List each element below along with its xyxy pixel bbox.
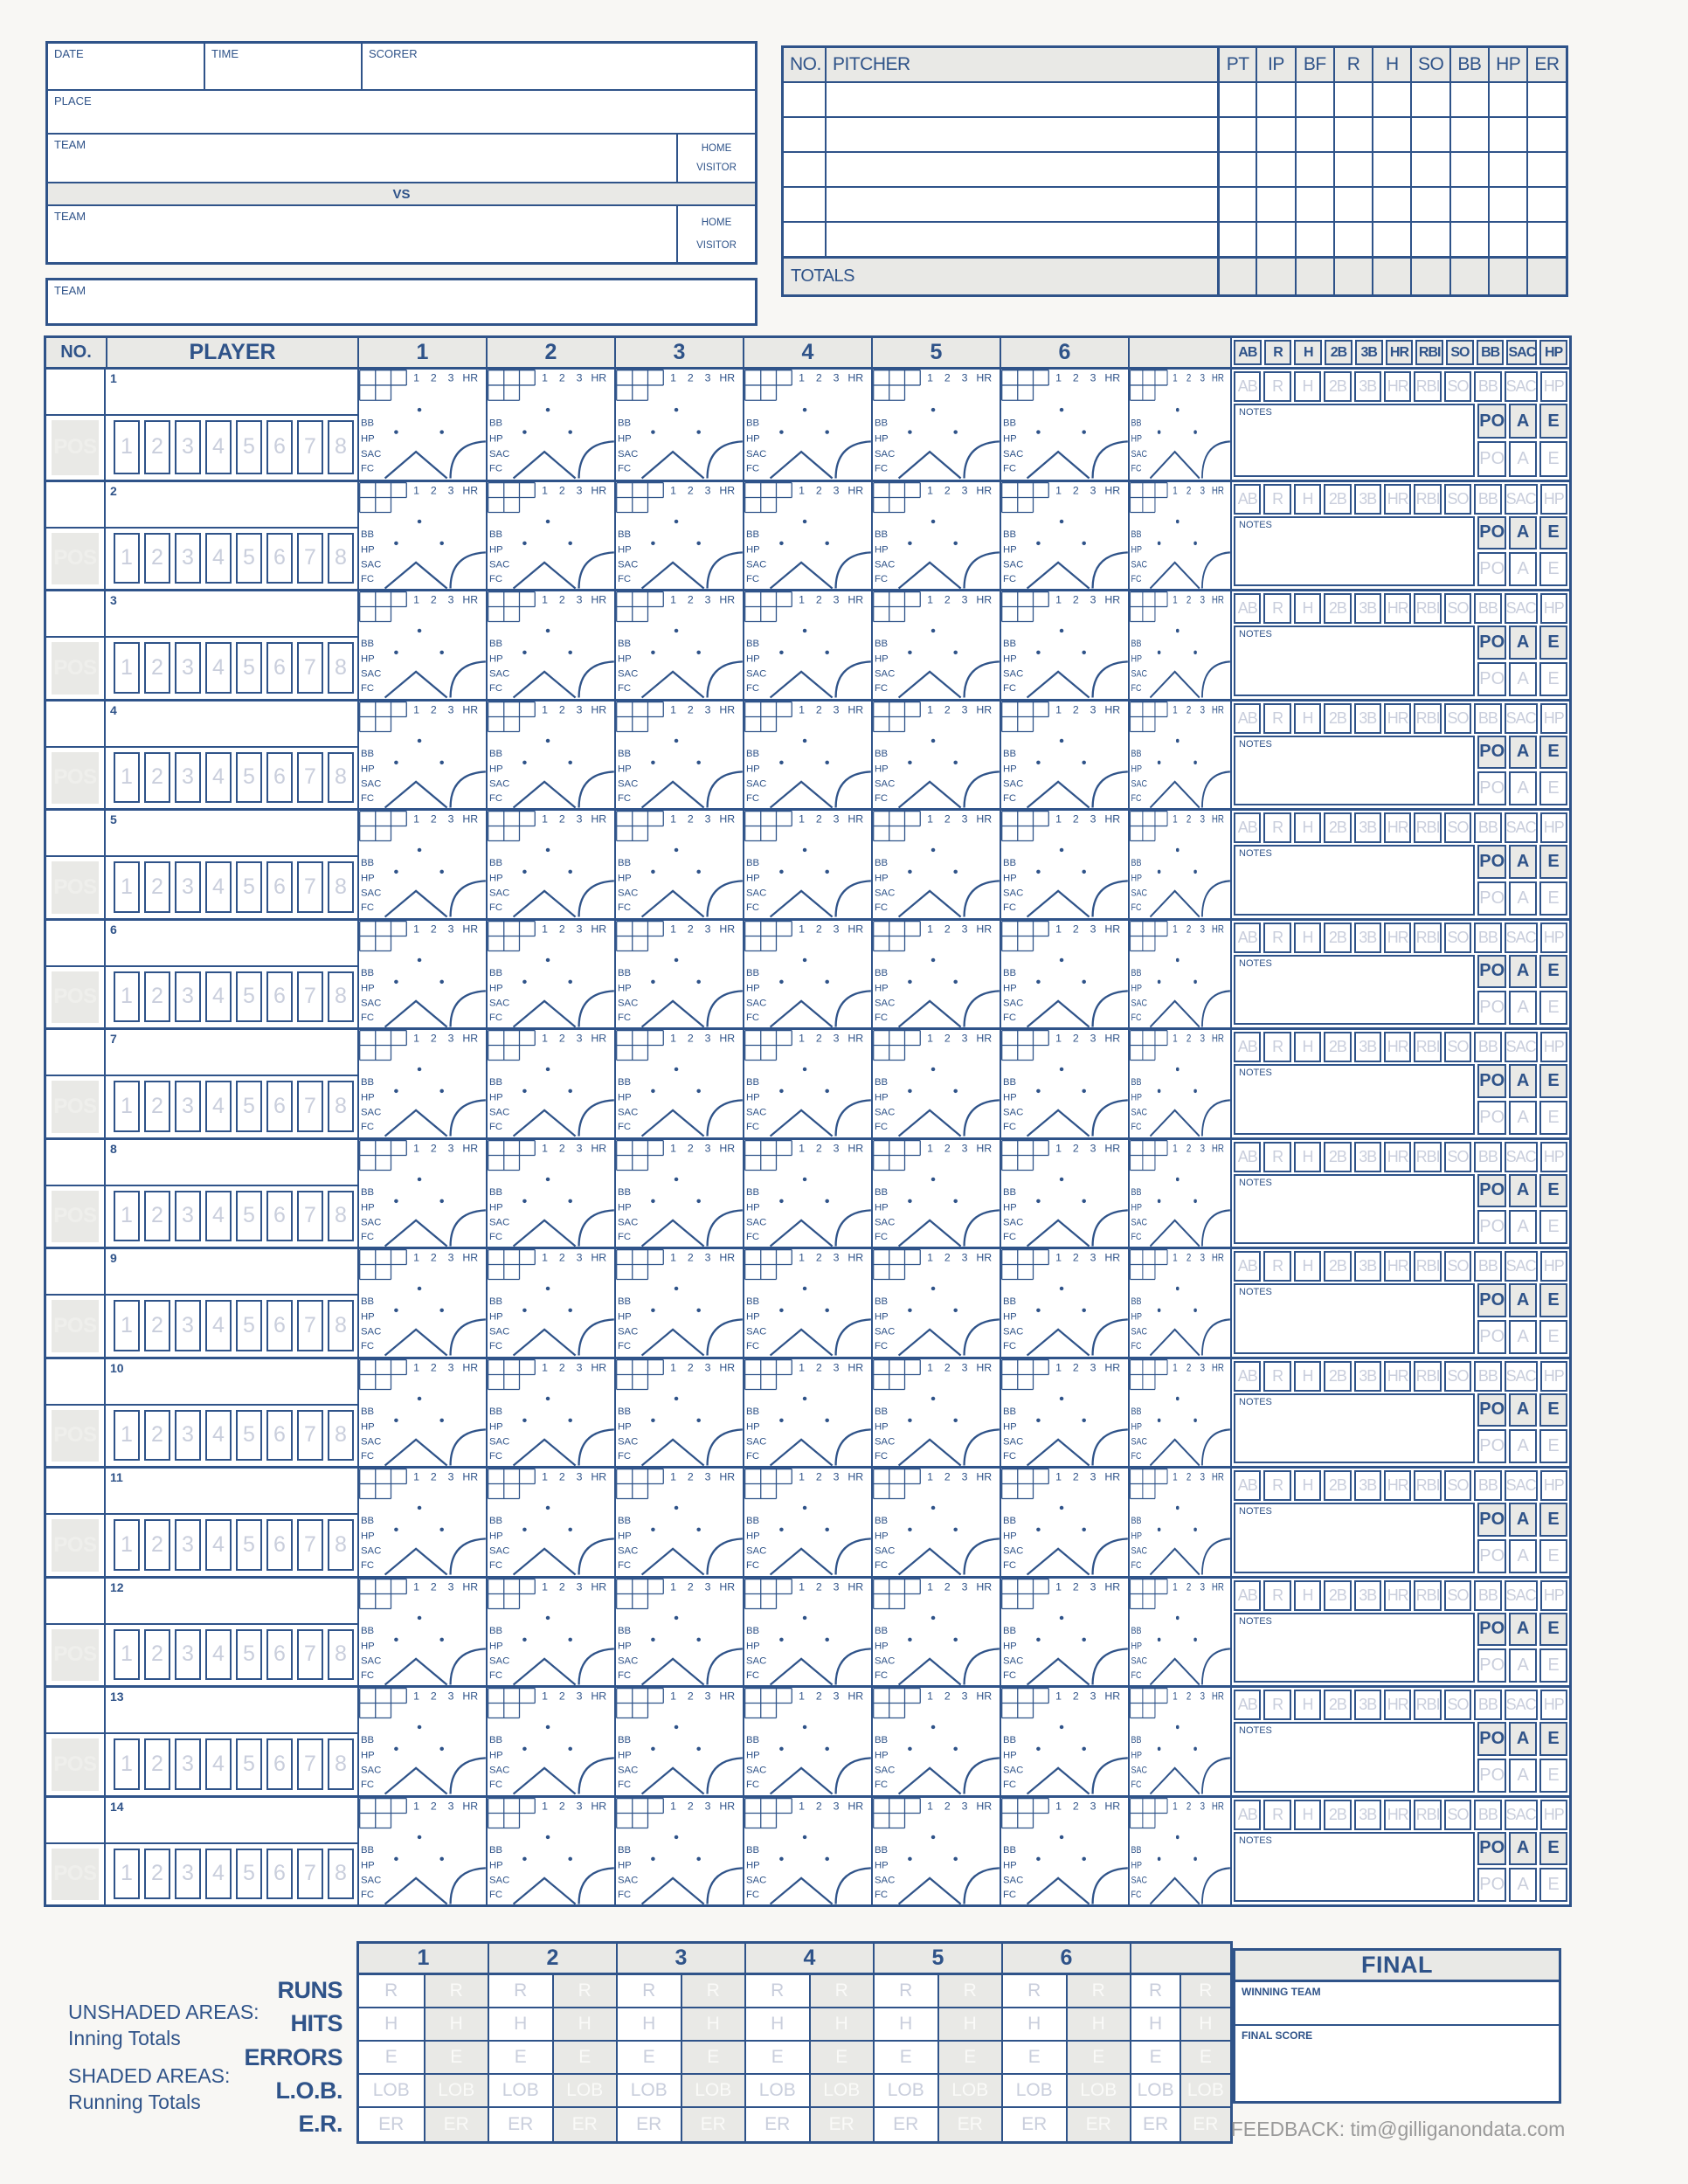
notes-field[interactable]: NOTES bbox=[1234, 1283, 1475, 1354]
stat-cell-hp[interactable]: HP bbox=[1540, 1690, 1567, 1720]
pitcher-stat-cell[interactable] bbox=[1410, 223, 1449, 256]
position-inning-box-3[interactable]: 3 bbox=[175, 1629, 201, 1681]
fielding-cell-po[interactable]: PO bbox=[1477, 771, 1506, 805]
player-number-cell[interactable] bbox=[46, 702, 104, 748]
stat-cell-sac[interactable]: SAC bbox=[1505, 1032, 1538, 1062]
inning-cell-2[interactable]: 123HRBBHPSACFC bbox=[486, 1030, 614, 1137]
pitcher-stat-cell[interactable] bbox=[1449, 153, 1488, 186]
player-name-cell[interactable]: 4 bbox=[106, 702, 357, 748]
position-inning-box-1[interactable]: 1 bbox=[114, 642, 140, 694]
position-inning-box-1[interactable]: 1 bbox=[114, 1849, 140, 1900]
inning-cell-6[interactable]: 123HRBBHPSACFC bbox=[1000, 811, 1128, 918]
running-total-cell[interactable]: R bbox=[424, 1975, 488, 2007]
pitcher-stat-cell[interactable] bbox=[1488, 223, 1526, 256]
player-name-cell[interactable]: 1 bbox=[106, 370, 357, 416]
running-total-cell[interactable]: LOB bbox=[424, 2075, 488, 2106]
fielding-cell-po[interactable]: PO bbox=[1477, 1429, 1506, 1463]
player-number-cell[interactable] bbox=[46, 482, 104, 529]
player-pos-cell[interactable]: POS bbox=[46, 967, 104, 1028]
player-name-cell[interactable]: 3 bbox=[106, 591, 357, 638]
inning-cell-7[interactable]: 123HRBBHPSACFC bbox=[1128, 921, 1230, 1028]
fielding-cell-a[interactable]: A bbox=[1509, 441, 1537, 476]
position-inning-box-4[interactable]: 4 bbox=[205, 752, 232, 804]
player-pos-cell[interactable]: POS bbox=[46, 638, 104, 699]
position-inning-box-7[interactable]: 7 bbox=[297, 1300, 323, 1351]
inning-total-cell[interactable]: R bbox=[1001, 1975, 1066, 2007]
stat-cell-3b[interactable]: 3B bbox=[1354, 812, 1381, 843]
stat-cell-hr[interactable]: HR bbox=[1384, 484, 1411, 515]
stat-cell-so[interactable]: SO bbox=[1444, 1580, 1471, 1611]
fielding-cell-po[interactable]: PO bbox=[1477, 1320, 1506, 1354]
inning-cell-7[interactable]: 123HRBBHPSACFC bbox=[1128, 1469, 1230, 1576]
stat-cell-h[interactable]: H bbox=[1294, 484, 1321, 515]
player-name-cell[interactable]: 7 bbox=[106, 1030, 357, 1076]
position-inning-box-7[interactable]: 7 bbox=[297, 1191, 323, 1242]
stat-cell-rbi[interactable]: RBI bbox=[1414, 593, 1441, 624]
stat-cell-bb[interactable]: BB bbox=[1474, 1580, 1501, 1611]
position-inning-box-2[interactable]: 2 bbox=[144, 1410, 170, 1462]
position-inning-box-5[interactable]: 5 bbox=[236, 1191, 262, 1242]
player-pos-cell[interactable]: POS bbox=[46, 529, 104, 590]
position-inning-box-3[interactable]: 3 bbox=[175, 1849, 201, 1900]
fielding-cell-a[interactable]: A bbox=[1509, 1320, 1537, 1354]
stat-cell-rbi[interactable]: RBI bbox=[1414, 1690, 1441, 1720]
pitcher-stat-cell[interactable] bbox=[1372, 188, 1410, 221]
stat-cell-h[interactable]: H bbox=[1294, 1361, 1321, 1392]
position-inning-box-4[interactable]: 4 bbox=[205, 420, 232, 474]
inning-total-cell[interactable]: E bbox=[1001, 2042, 1066, 2073]
inning-cell-5[interactable]: 123HRBBHPSACFC bbox=[871, 1359, 1000, 1467]
position-inning-box-8[interactable]: 8 bbox=[328, 1300, 354, 1351]
pitcher-stat-cell[interactable] bbox=[1333, 153, 1372, 186]
stat-cell-so[interactable]: SO bbox=[1444, 703, 1471, 734]
inning-cell-4[interactable]: 123HRBBHPSACFC bbox=[743, 702, 871, 809]
inning-cell-6[interactable]: 123HRBBHPSACFC bbox=[1000, 1688, 1128, 1795]
position-inning-box-8[interactable]: 8 bbox=[328, 642, 354, 694]
player-number-cell[interactable] bbox=[46, 811, 104, 857]
stat-cell-ab[interactable]: AB bbox=[1234, 1032, 1261, 1062]
position-inning-box-4[interactable]: 4 bbox=[205, 1519, 232, 1571]
inning-total-cell[interactable]: H bbox=[1130, 2008, 1180, 2040]
position-inning-box-7[interactable]: 7 bbox=[297, 971, 323, 1023]
position-inning-box-5[interactable]: 5 bbox=[236, 971, 262, 1023]
position-inning-box-6[interactable]: 6 bbox=[266, 1849, 293, 1900]
inning-cell-1[interactable]: 123HRBBHPSACFC bbox=[357, 921, 486, 1028]
stat-cell-rbi[interactable]: RBI bbox=[1414, 1032, 1441, 1062]
inning-cell-2[interactable]: 123HRBBHPSACFC bbox=[486, 1798, 614, 1905]
pitcher-totals-cell[interactable] bbox=[1410, 259, 1449, 294]
stat-cell-h[interactable]: H bbox=[1294, 703, 1321, 734]
stat-cell-r[interactable]: R bbox=[1263, 1800, 1290, 1830]
inning-total-cell[interactable]: E bbox=[744, 2042, 809, 2073]
stat-cell-sac[interactable]: SAC bbox=[1505, 703, 1538, 734]
inning-cell-7[interactable]: 123HRBBHPSACFC bbox=[1128, 482, 1230, 590]
inning-total-cell[interactable]: E bbox=[1130, 2042, 1180, 2073]
stat-cell-ab[interactable]: AB bbox=[1234, 1142, 1261, 1172]
time-field[interactable]: TIME bbox=[205, 44, 363, 89]
stat-cell-so[interactable]: SO bbox=[1444, 923, 1471, 953]
pitcher-totals-cell[interactable] bbox=[1256, 259, 1294, 294]
running-total-cell[interactable]: R bbox=[809, 1975, 874, 2007]
pitcher-stat-cell[interactable] bbox=[1333, 118, 1372, 151]
fielding-cell-e[interactable]: E bbox=[1539, 1429, 1567, 1463]
position-inning-box-7[interactable]: 7 bbox=[297, 861, 323, 913]
fielding-cell-po[interactable]: PO bbox=[1477, 1210, 1506, 1244]
inning-cell-6[interactable]: 123HRBBHPSACFC bbox=[1000, 1030, 1128, 1137]
position-inning-box-6[interactable]: 6 bbox=[266, 420, 293, 474]
inning-total-cell[interactable]: LOB bbox=[488, 2075, 552, 2106]
stat-cell-3b[interactable]: 3B bbox=[1354, 1032, 1381, 1062]
stat-cell-bb[interactable]: BB bbox=[1474, 371, 1501, 402]
notes-field[interactable]: NOTES bbox=[1234, 404, 1475, 477]
inning-cell-1[interactable]: 123HRBBHPSACFC bbox=[357, 1030, 486, 1137]
position-inning-box-8[interactable]: 8 bbox=[328, 1738, 354, 1790]
running-total-cell[interactable]: E bbox=[809, 2042, 874, 2073]
position-inning-box-3[interactable]: 3 bbox=[175, 1738, 201, 1790]
place-field[interactable]: PLACE bbox=[48, 91, 755, 133]
notes-field[interactable]: NOTES bbox=[1234, 1174, 1475, 1245]
position-inning-box-4[interactable]: 4 bbox=[205, 1081, 232, 1132]
inning-cell-1[interactable]: 123HRBBHPSACFC bbox=[357, 482, 486, 590]
inning-cell-1[interactable]: 123HRBBHPSACFC bbox=[357, 811, 486, 918]
position-inning-box-5[interactable]: 5 bbox=[236, 642, 262, 694]
inning-cell-3[interactable]: 123HRBBHPSACFC bbox=[614, 482, 743, 590]
notes-field[interactable]: NOTES bbox=[1234, 516, 1475, 587]
stat-cell-ab[interactable]: AB bbox=[1234, 923, 1261, 953]
inning-cell-5[interactable]: 123HRBBHPSACFC bbox=[871, 591, 1000, 699]
pitcher-name-cell[interactable] bbox=[825, 223, 1217, 256]
running-total-cell[interactable]: LOB bbox=[552, 2075, 617, 2106]
inning-total-cell[interactable]: R bbox=[744, 1975, 809, 2007]
player-number-cell[interactable] bbox=[46, 1798, 104, 1844]
stat-cell-sac[interactable]: SAC bbox=[1505, 1361, 1538, 1392]
team-1-home-visitor-cell[interactable]: HOME VISITOR bbox=[676, 135, 755, 182]
stat-cell-h[interactable]: H bbox=[1294, 1032, 1321, 1062]
stat-cell-ab[interactable]: AB bbox=[1234, 593, 1261, 624]
inning-total-cell[interactable]: R bbox=[616, 1975, 681, 2007]
pitcher-stat-cell[interactable] bbox=[1449, 188, 1488, 221]
position-inning-box-1[interactable]: 1 bbox=[114, 1629, 140, 1681]
stat-cell-3b[interactable]: 3B bbox=[1354, 1251, 1381, 1282]
inning-total-cell[interactable]: E bbox=[873, 2042, 937, 2073]
pitcher-totals-cell[interactable] bbox=[1333, 259, 1372, 294]
position-inning-box-8[interactable]: 8 bbox=[328, 1519, 354, 1571]
position-inning-box-7[interactable]: 7 bbox=[297, 1629, 323, 1681]
stat-cell-h[interactable]: H bbox=[1294, 1142, 1321, 1172]
pitcher-stat-cell[interactable] bbox=[1410, 118, 1449, 151]
stat-cell-hr[interactable]: HR bbox=[1384, 1800, 1411, 1830]
position-inning-box-5[interactable]: 5 bbox=[236, 1081, 262, 1132]
inning-cell-7[interactable]: 123HRBBHPSACFC bbox=[1128, 1688, 1230, 1795]
fielding-cell-a[interactable]: A bbox=[1509, 771, 1537, 805]
stat-cell-3b[interactable]: 3B bbox=[1354, 1142, 1381, 1172]
inning-cell-6[interactable]: 123HRBBHPSACFC bbox=[1000, 921, 1128, 1028]
stat-cell-bb[interactable]: BB bbox=[1474, 1032, 1501, 1062]
inning-cell-1[interactable]: 123HRBBHPSACFC bbox=[357, 1249, 486, 1357]
position-inning-box-2[interactable]: 2 bbox=[144, 752, 170, 804]
inning-cell-1[interactable]: 123HRBBHPSACFC bbox=[357, 702, 486, 809]
notes-field[interactable]: NOTES bbox=[1234, 845, 1475, 916]
fielding-cell-a[interactable]: A bbox=[1509, 1539, 1537, 1573]
running-total-cell[interactable]: E bbox=[937, 2042, 1002, 2073]
stat-cell-hp[interactable]: HP bbox=[1540, 593, 1567, 624]
fielding-cell-po[interactable]: PO bbox=[1477, 662, 1506, 696]
pitcher-name-cell[interactable] bbox=[825, 153, 1217, 186]
stat-cell-h[interactable]: H bbox=[1294, 593, 1321, 624]
position-inning-box-8[interactable]: 8 bbox=[328, 861, 354, 913]
fielding-cell-po[interactable]: PO bbox=[1477, 1868, 1506, 1902]
running-total-cell[interactable]: E bbox=[1066, 2042, 1131, 2073]
pitcher-stat-cell[interactable] bbox=[1410, 153, 1449, 186]
position-inning-box-1[interactable]: 1 bbox=[114, 1410, 140, 1462]
fielding-cell-e[interactable]: E bbox=[1539, 552, 1567, 586]
position-inning-box-4[interactable]: 4 bbox=[205, 1849, 232, 1900]
stat-cell-so[interactable]: SO bbox=[1444, 371, 1471, 402]
stat-cell-r[interactable]: R bbox=[1263, 1470, 1290, 1501]
inning-total-cell[interactable]: H bbox=[488, 2008, 552, 2040]
inning-cell-5[interactable]: 123HRBBHPSACFC bbox=[871, 1249, 1000, 1357]
player-name-cell[interactable]: 6 bbox=[106, 921, 357, 967]
stat-cell-2b[interactable]: 2B bbox=[1324, 1251, 1351, 1282]
stat-cell-3b[interactable]: 3B bbox=[1354, 371, 1381, 402]
inning-cell-2[interactable]: 123HRBBHPSACFC bbox=[486, 1249, 614, 1357]
inning-cell-7[interactable]: 123HRBBHPSACFC bbox=[1128, 591, 1230, 699]
position-inning-box-4[interactable]: 4 bbox=[205, 1629, 232, 1681]
position-inning-box-2[interactable]: 2 bbox=[144, 1081, 170, 1132]
stat-cell-bb[interactable]: BB bbox=[1474, 703, 1501, 734]
fielding-cell-a[interactable]: A bbox=[1509, 662, 1537, 696]
inning-cell-7[interactable]: 123HRBBHPSACFC bbox=[1128, 1798, 1230, 1905]
position-inning-box-4[interactable]: 4 bbox=[205, 971, 232, 1023]
stat-cell-2b[interactable]: 2B bbox=[1324, 593, 1351, 624]
running-total-cell[interactable]: ER bbox=[424, 2108, 488, 2141]
fielding-cell-po[interactable]: PO bbox=[1477, 1648, 1506, 1683]
stat-cell-sac[interactable]: SAC bbox=[1505, 1142, 1538, 1172]
position-inning-box-2[interactable]: 2 bbox=[144, 1738, 170, 1790]
running-total-cell[interactable]: ER bbox=[937, 2108, 1002, 2141]
inning-total-cell[interactable]: R bbox=[488, 1975, 552, 2007]
stat-cell-r[interactable]: R bbox=[1263, 923, 1290, 953]
inning-cell-4[interactable]: 123HRBBHPSACFC bbox=[743, 370, 871, 480]
scorer-field[interactable]: SCORER bbox=[363, 44, 755, 89]
pitcher-stat-cell[interactable] bbox=[1333, 83, 1372, 116]
inning-cell-4[interactable]: 123HRBBHPSACFC bbox=[743, 482, 871, 590]
pitcher-stat-cell[interactable] bbox=[1372, 83, 1410, 116]
position-inning-box-8[interactable]: 8 bbox=[328, 1191, 354, 1242]
pitcher-totals-cell[interactable] bbox=[1488, 259, 1526, 294]
pitcher-totals-cell[interactable] bbox=[1372, 259, 1410, 294]
inning-cell-6[interactable]: 123HRBBHPSACFC bbox=[1000, 370, 1128, 480]
pitcher-stat-cell[interactable] bbox=[1295, 153, 1333, 186]
inning-cell-2[interactable]: 123HRBBHPSACFC bbox=[486, 702, 614, 809]
pitcher-number-cell[interactable] bbox=[784, 188, 825, 221]
stat-cell-so[interactable]: SO bbox=[1444, 593, 1471, 624]
fielding-cell-a[interactable]: A bbox=[1509, 1429, 1537, 1463]
running-total-cell[interactable]: LOB bbox=[1180, 2075, 1229, 2106]
inning-cell-1[interactable]: 123HRBBHPSACFC bbox=[357, 370, 486, 480]
inning-cell-6[interactable]: 123HRBBHPSACFC bbox=[1000, 1469, 1128, 1576]
pitcher-stat-cell[interactable] bbox=[1488, 188, 1526, 221]
inning-total-cell[interactable]: H bbox=[1001, 2008, 1066, 2040]
stat-cell-sac[interactable]: SAC bbox=[1505, 923, 1538, 953]
inning-cell-7[interactable]: 123HRBBHPSACFC bbox=[1128, 1249, 1230, 1357]
inning-cell-3[interactable]: 123HRBBHPSACFC bbox=[614, 1249, 743, 1357]
position-inning-box-3[interactable]: 3 bbox=[175, 420, 201, 474]
inning-total-cell[interactable]: LOB bbox=[359, 2075, 424, 2106]
stat-cell-h[interactable]: H bbox=[1294, 923, 1321, 953]
stat-cell-ab[interactable]: AB bbox=[1234, 371, 1261, 402]
inning-total-cell[interactable]: E bbox=[616, 2042, 681, 2073]
inning-cell-7[interactable]: 123HRBBHPSACFC bbox=[1128, 811, 1230, 918]
position-inning-box-3[interactable]: 3 bbox=[175, 752, 201, 804]
stat-cell-rbi[interactable]: RBI bbox=[1414, 1251, 1441, 1282]
stat-cell-h[interactable]: H bbox=[1294, 1800, 1321, 1830]
pitcher-number-cell[interactable] bbox=[784, 223, 825, 256]
fielding-cell-po[interactable]: PO bbox=[1477, 1101, 1506, 1135]
player-name-cell[interactable]: 9 bbox=[106, 1249, 357, 1296]
notes-field[interactable]: NOTES bbox=[1234, 1613, 1475, 1683]
inning-total-cell[interactable]: H bbox=[873, 2008, 937, 2040]
player-pos-cell[interactable]: POS bbox=[46, 1844, 104, 1905]
pitcher-stat-cell[interactable] bbox=[1256, 188, 1294, 221]
stat-cell-r[interactable]: R bbox=[1263, 1580, 1290, 1611]
notes-field[interactable]: NOTES bbox=[1234, 1064, 1475, 1135]
inning-cell-5[interactable]: 123HRBBHPSACFC bbox=[871, 1579, 1000, 1686]
stat-cell-so[interactable]: SO bbox=[1444, 812, 1471, 843]
inning-cell-5[interactable]: 123HRBBHPSACFC bbox=[871, 811, 1000, 918]
player-name-cell[interactable]: 13 bbox=[106, 1688, 357, 1734]
stat-cell-2b[interactable]: 2B bbox=[1324, 1470, 1351, 1501]
inning-cell-2[interactable]: 123HRBBHPSACFC bbox=[486, 370, 614, 480]
position-inning-box-3[interactable]: 3 bbox=[175, 1191, 201, 1242]
inning-cell-5[interactable]: 123HRBBHPSACFC bbox=[871, 1469, 1000, 1576]
running-total-cell[interactable]: R bbox=[552, 1975, 617, 2007]
inning-total-cell[interactable]: R bbox=[359, 1975, 424, 2007]
stat-cell-2b[interactable]: 2B bbox=[1324, 703, 1351, 734]
inning-cell-4[interactable]: 123HRBBHPSACFC bbox=[743, 1140, 871, 1248]
fielding-cell-a[interactable]: A bbox=[1509, 1759, 1537, 1793]
position-inning-box-3[interactable]: 3 bbox=[175, 861, 201, 913]
stat-cell-h[interactable]: H bbox=[1294, 1580, 1321, 1611]
stat-cell-hr[interactable]: HR bbox=[1384, 1361, 1411, 1392]
pitcher-stat-cell[interactable] bbox=[1410, 83, 1449, 116]
running-total-cell[interactable]: R bbox=[681, 1975, 745, 2007]
inning-cell-4[interactable]: 123HRBBHPSACFC bbox=[743, 1030, 871, 1137]
position-inning-box-1[interactable]: 1 bbox=[114, 1191, 140, 1242]
pitcher-stat-cell[interactable] bbox=[1526, 188, 1565, 221]
fielding-cell-po[interactable]: PO bbox=[1477, 991, 1506, 1025]
stat-cell-rbi[interactable]: RBI bbox=[1414, 1580, 1441, 1611]
player-number-cell[interactable] bbox=[46, 1140, 104, 1186]
running-total-cell[interactable]: R bbox=[1180, 1975, 1229, 2007]
inning-cell-6[interactable]: 123HRBBHPSACFC bbox=[1000, 591, 1128, 699]
position-inning-box-1[interactable]: 1 bbox=[114, 752, 140, 804]
running-total-cell[interactable]: H bbox=[552, 2008, 617, 2040]
inning-cell-4[interactable]: 123HRBBHPSACFC bbox=[743, 1688, 871, 1795]
inning-cell-2[interactable]: 123HRBBHPSACFC bbox=[486, 1688, 614, 1795]
inning-total-cell[interactable]: LOB bbox=[744, 2075, 809, 2106]
fielding-cell-e[interactable]: E bbox=[1539, 1101, 1567, 1135]
stat-cell-3b[interactable]: 3B bbox=[1354, 1361, 1381, 1392]
pitcher-stat-cell[interactable] bbox=[1410, 188, 1449, 221]
inning-cell-7[interactable]: 123HRBBHPSACFC bbox=[1128, 1579, 1230, 1686]
stat-cell-so[interactable]: SO bbox=[1444, 1032, 1471, 1062]
pitcher-totals-cell[interactable] bbox=[1526, 259, 1565, 294]
position-inning-box-3[interactable]: 3 bbox=[175, 1519, 201, 1571]
inning-total-cell[interactable]: E bbox=[359, 2042, 424, 2073]
stat-cell-2b[interactable]: 2B bbox=[1324, 1032, 1351, 1062]
running-total-cell[interactable]: ER bbox=[681, 2108, 745, 2141]
stat-cell-h[interactable]: H bbox=[1294, 1690, 1321, 1720]
stat-cell-so[interactable]: SO bbox=[1444, 1470, 1471, 1501]
inning-cell-2[interactable]: 123HRBBHPSACFC bbox=[486, 591, 614, 699]
notes-field[interactable]: NOTES bbox=[1234, 1393, 1475, 1464]
position-inning-box-2[interactable]: 2 bbox=[144, 533, 170, 584]
inning-cell-7[interactable]: 123HRBBHPSACFC bbox=[1128, 370, 1230, 480]
position-inning-box-8[interactable]: 8 bbox=[328, 533, 354, 584]
stat-cell-2b[interactable]: 2B bbox=[1324, 1580, 1351, 1611]
stat-cell-3b[interactable]: 3B bbox=[1354, 484, 1381, 515]
inning-cell-3[interactable]: 123HRBBHPSACFC bbox=[614, 1798, 743, 1905]
stat-cell-sac[interactable]: SAC bbox=[1505, 1470, 1538, 1501]
pitcher-stat-cell[interactable] bbox=[1256, 118, 1294, 151]
fielding-cell-e[interactable]: E bbox=[1539, 991, 1567, 1025]
fielding-cell-e[interactable]: E bbox=[1539, 1648, 1567, 1683]
inning-cell-1[interactable]: 123HRBBHPSACFC bbox=[357, 1579, 486, 1686]
inning-total-cell[interactable]: H bbox=[616, 2008, 681, 2040]
fielding-cell-po[interactable]: PO bbox=[1477, 441, 1506, 476]
position-inning-box-8[interactable]: 8 bbox=[328, 420, 354, 474]
inning-cell-1[interactable]: 123HRBBHPSACFC bbox=[357, 591, 486, 699]
pitcher-stat-cell[interactable] bbox=[1372, 118, 1410, 151]
stat-cell-so[interactable]: SO bbox=[1444, 1361, 1471, 1392]
stat-cell-bb[interactable]: BB bbox=[1474, 1142, 1501, 1172]
stat-cell-hp[interactable]: HP bbox=[1540, 1470, 1567, 1501]
fielding-cell-a[interactable]: A bbox=[1509, 991, 1537, 1025]
inning-total-cell[interactable]: E bbox=[488, 2042, 552, 2073]
stat-cell-2b[interactable]: 2B bbox=[1324, 371, 1351, 402]
stat-cell-r[interactable]: R bbox=[1263, 1032, 1290, 1062]
stat-cell-r[interactable]: R bbox=[1263, 1142, 1290, 1172]
inning-cell-5[interactable]: 123HRBBHPSACFC bbox=[871, 1688, 1000, 1795]
inning-cell-3[interactable]: 123HRBBHPSACFC bbox=[614, 1030, 743, 1137]
player-pos-cell[interactable]: POS bbox=[46, 416, 104, 480]
inning-cell-3[interactable]: 123HRBBHPSACFC bbox=[614, 370, 743, 480]
stat-cell-sac[interactable]: SAC bbox=[1505, 1800, 1538, 1830]
stat-cell-ab[interactable]: AB bbox=[1234, 1690, 1261, 1720]
position-inning-box-8[interactable]: 8 bbox=[328, 1410, 354, 1462]
stat-cell-bb[interactable]: BB bbox=[1474, 1690, 1501, 1720]
inning-cell-5[interactable]: 123HRBBHPSACFC bbox=[871, 482, 1000, 590]
player-name-cell[interactable]: 2 bbox=[106, 482, 357, 529]
stat-cell-hp[interactable]: HP bbox=[1540, 1361, 1567, 1392]
position-inning-box-1[interactable]: 1 bbox=[114, 1738, 140, 1790]
player-number-cell[interactable] bbox=[46, 1469, 104, 1515]
player-pos-cell[interactable]: POS bbox=[46, 1186, 104, 1248]
stat-cell-hp[interactable]: HP bbox=[1540, 484, 1567, 515]
notes-field[interactable]: NOTES bbox=[1234, 1503, 1475, 1573]
inning-cell-1[interactable]: 123HRBBHPSACFC bbox=[357, 1359, 486, 1467]
pitcher-stat-cell[interactable] bbox=[1526, 153, 1565, 186]
pitcher-totals-cell[interactable] bbox=[1295, 259, 1333, 294]
position-inning-box-1[interactable]: 1 bbox=[114, 1300, 140, 1351]
inning-cell-3[interactable]: 123HRBBHPSACFC bbox=[614, 1140, 743, 1248]
stat-cell-bb[interactable]: BB bbox=[1474, 812, 1501, 843]
position-inning-box-3[interactable]: 3 bbox=[175, 1410, 201, 1462]
position-inning-box-6[interactable]: 6 bbox=[266, 533, 293, 584]
stat-cell-hp[interactable]: HP bbox=[1540, 923, 1567, 953]
stat-cell-hr[interactable]: HR bbox=[1384, 593, 1411, 624]
